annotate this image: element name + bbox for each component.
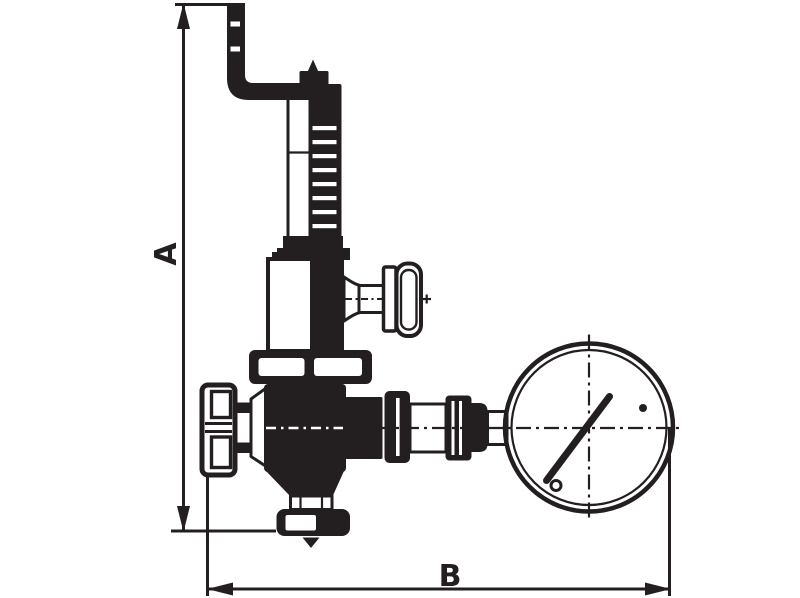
dimension-b-arrow-right-icon: [645, 583, 671, 596]
adjusting-screw-cap: [295, 60, 342, 100]
spring-housing: [277, 99, 350, 261]
bonnet: [249, 251, 372, 384]
pressure-gauge: [348, 335, 682, 522]
dimension-a-arrow-down-icon: [177, 506, 190, 532]
inlet-handwheel: [202, 385, 252, 475]
handwheel-stem-upper: [234, 403, 252, 414]
gauge-needle: [547, 397, 610, 481]
side-tap-disc: [384, 267, 397, 331]
housing-flange-upper: [283, 236, 343, 249]
gauge-needle-hub: [551, 481, 561, 491]
inlet-elbow-pipe: [227, 3, 302, 100]
flow-arrow-down-icon: [303, 538, 320, 549]
dimension-b-arrow-left-icon: [207, 583, 233, 596]
handwheel-stem-lower: [234, 443, 252, 454]
cap-pin: [308, 60, 319, 73]
technical-drawing-canvas: A B: [0, 0, 800, 598]
dimension-b-label: B: [439, 559, 462, 594]
valve-body: [251, 384, 385, 472]
body-inlet-bell: [251, 389, 266, 467]
bottom-taper: [266, 471, 344, 497]
bottom-tube: [291, 496, 333, 510]
side-tap: [344, 264, 431, 337]
gauge-dial-dot: [639, 404, 647, 412]
dimension-a-arrow-up-icon: [177, 3, 190, 29]
dimension-a-label: A: [149, 242, 184, 266]
bottom-outlet: [266, 471, 350, 548]
